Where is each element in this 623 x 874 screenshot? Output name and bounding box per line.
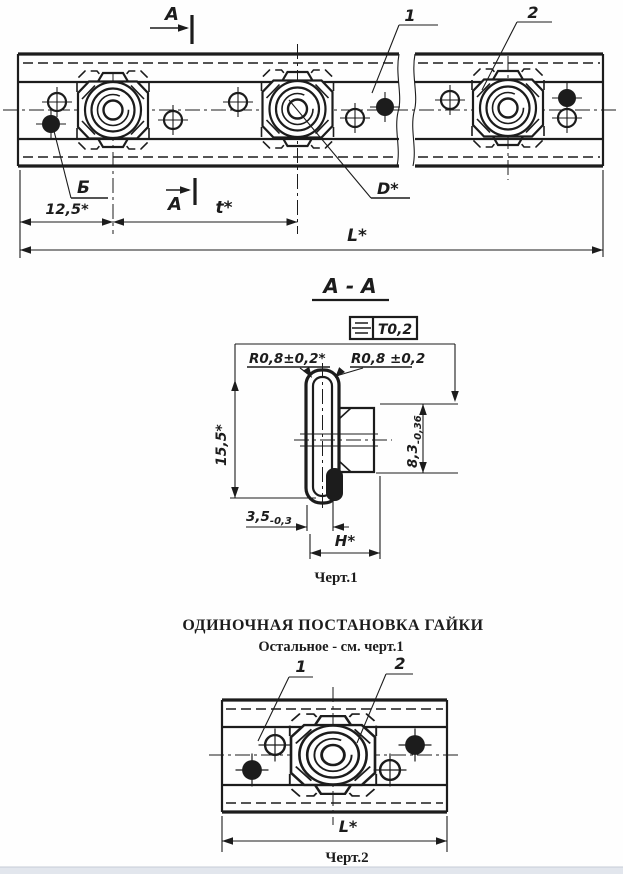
arrow-icon (113, 218, 124, 226)
technical-drawing: A A Б 1 2 D* (0, 0, 623, 874)
arrow-icon (369, 549, 380, 557)
hole-icon (552, 103, 582, 133)
hole-filled-icon (370, 92, 400, 122)
dim-label: 12,5* (45, 202, 89, 218)
arrow-icon (102, 218, 113, 226)
hole-icon (223, 87, 253, 117)
arrow-icon (296, 523, 307, 531)
hole-filled-icon (36, 109, 66, 139)
arrow-icon (287, 218, 298, 226)
arrow-icon (333, 523, 344, 531)
dim-label: H* (335, 532, 356, 550)
dim-length: L* (222, 816, 447, 852)
dim-label: 3,5-0,3 (246, 509, 292, 527)
dim-12-5: 12,5* (20, 170, 603, 258)
hole-filled-icon (399, 729, 432, 762)
rail-top-view: A A Б 1 2 D* (3, 3, 618, 258)
dim-pitch: t* (113, 198, 298, 226)
section-arrow-icon (180, 186, 191, 194)
callout-nut: 2 (482, 3, 552, 90)
section-view: A - A T0,2 R0,8±0,2* R0,8 ±0,2 (214, 274, 459, 586)
view-subtitle: Остальное - см. черт.1 (258, 639, 403, 655)
arrow-icon (20, 218, 31, 226)
section-mark-bottom: A (166, 178, 195, 215)
arrow-icon (231, 487, 239, 498)
section-geometry (294, 363, 392, 509)
arrow-icon (436, 837, 447, 845)
nut-icon (290, 714, 376, 796)
hole-icon (42, 87, 72, 117)
figure-caption: Черт.2 (325, 850, 368, 866)
dim-label: t* (215, 198, 232, 218)
section-label: A (166, 194, 182, 215)
section-view-title: A - A (321, 274, 376, 298)
callout-rail: 1 (372, 6, 438, 93)
dim-length: L* (20, 226, 603, 254)
thread-diameter-label: D* (377, 179, 399, 198)
dim-label: L* (339, 817, 358, 836)
view-title: ОДИНОЧНАЯ ПОСТАНОВКА ГАЙКИ (182, 615, 483, 634)
tolerance-value: T0,2 (378, 322, 412, 338)
callout-number: 2 (527, 3, 538, 22)
drawing-sheet: A A Б 1 2 D* (0, 0, 623, 874)
arrow-icon (222, 837, 233, 845)
dim-nut-height: 8,3-0,36 (376, 404, 458, 473)
section-title: A - A (312, 274, 389, 300)
section-arrow-icon (178, 24, 189, 32)
hole-icon (374, 754, 407, 787)
dim-label: 15,5* (214, 423, 230, 466)
dim-label: 8,3-0,36 (405, 415, 424, 468)
nut-icon (472, 69, 544, 147)
nut-icon (77, 71, 149, 149)
hole-view-label: Б (77, 178, 90, 198)
radius-label: R0,8±0,2* (249, 351, 326, 367)
section-mark-top: A (150, 4, 192, 44)
arrow-icon (419, 404, 427, 415)
dim-label: L* (347, 226, 367, 246)
arrow-icon (310, 549, 321, 557)
footer-bar (0, 867, 623, 874)
arrow-icon (592, 246, 603, 254)
callout-number: 1 (295, 657, 306, 676)
arrow-icon (20, 246, 31, 254)
callout-number: 2 (394, 654, 405, 673)
arrow-icon (231, 380, 239, 391)
rail-lip (326, 468, 343, 501)
callout-number: 1 (404, 6, 415, 25)
hole-icon (259, 729, 292, 762)
arrow-icon (451, 391, 459, 402)
hole-icon (340, 103, 370, 133)
nut-icon (262, 70, 334, 148)
single-nut-view: ОДИНОЧНАЯ ПОСТАНОВКА ГАЙКИ Остальное - с… (182, 615, 483, 866)
dim-lip: 3,5-0,3 (246, 502, 349, 531)
section-label: A (163, 4, 179, 25)
radius-label: R0,8 ±0,2 (351, 351, 425, 367)
figure-caption: Черт.1 (314, 570, 357, 586)
hole-filled-icon (236, 754, 269, 787)
